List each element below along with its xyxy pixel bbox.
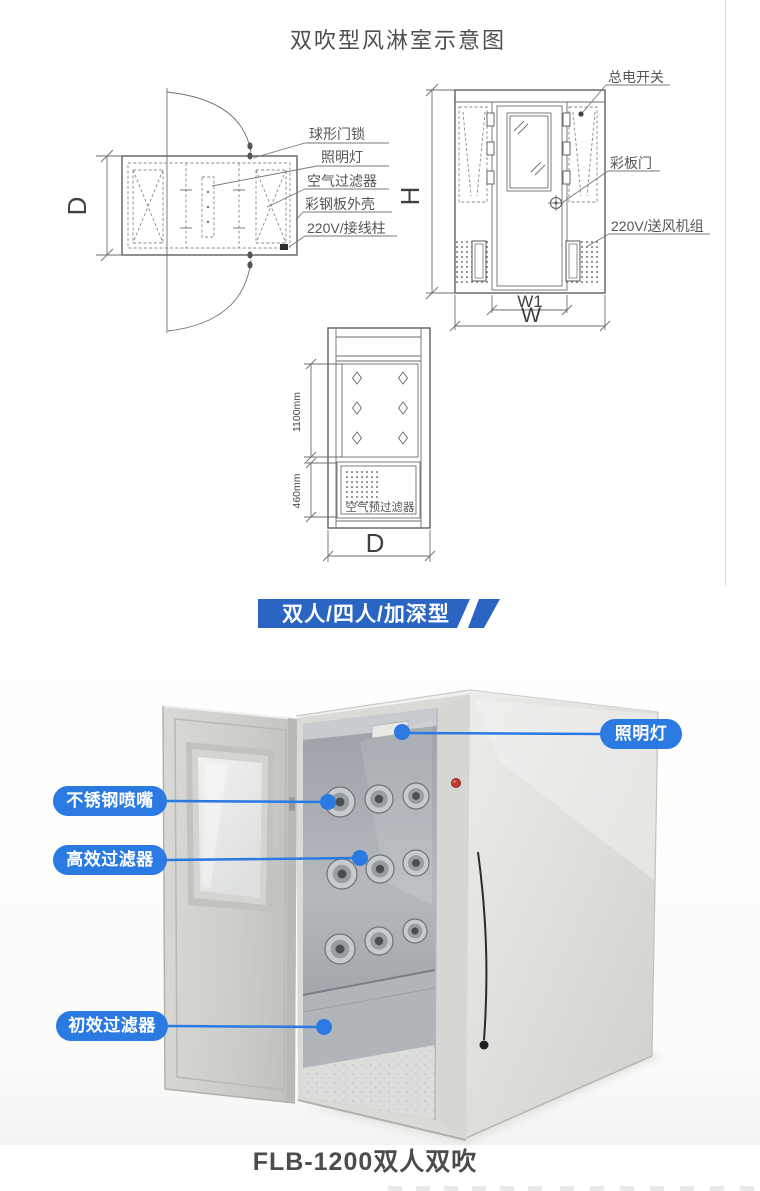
dim-label-height: H: [395, 187, 425, 206]
dim-label-depth: D: [366, 528, 385, 558]
technical-schematic: 双吹型风淋室示意图: [62, 0, 726, 586]
callout-label: 220V/接线柱: [307, 220, 386, 236]
open-door: [163, 706, 297, 1103]
dim-label-width: W: [521, 304, 541, 327]
callout-label: 220V/送风机组: [611, 218, 704, 234]
front-view: H W1 W 总电开关 彩板门 220V/送风机组: [395, 69, 710, 331]
callout-label: 总电开关: [608, 69, 664, 85]
callout-pill-prefilter: 初效过滤器: [56, 1011, 168, 1041]
plan-callouts: 球形门锁 照明灯 空气过滤器 彩钢板外壳 220V/接线柱: [212, 126, 397, 247]
nozzle-diamonds: [353, 372, 408, 444]
blower-left: [456, 238, 490, 284]
prefilter-panel-label: 空气预过滤器: [346, 500, 415, 514]
dim-label-upper: 1100mm: [291, 392, 303, 432]
blower-right: [566, 238, 600, 284]
side-view: 空气预过滤器 1100mm 460mm D: [291, 328, 435, 562]
callout-pill-hepa: 高效过滤器: [53, 845, 167, 875]
side-dim-upper: 1100mm: [291, 359, 342, 462]
door-latch: [289, 797, 295, 811]
callout-label: 空气过滤器: [307, 173, 377, 189]
indicator-light: [452, 779, 461, 788]
type-banner: 双人/四人/加深型: [258, 599, 500, 628]
front-dim-height: H: [395, 84, 455, 299]
product-model-caption: FLB-1200双人双吹: [0, 1142, 730, 1178]
banner-text: 双人/四人/加深型: [282, 603, 450, 626]
plan-view: D 球形门锁 照明灯 空气过滤器 彩钢板外壳 220V/接线柱: [62, 88, 397, 333]
front-callouts: 总电开关 彩板门 220V/送风机组: [563, 69, 710, 247]
door-hinges: [487, 113, 570, 184]
callout-pill-light: 照明灯: [600, 719, 682, 749]
side-dim-depth: D: [323, 528, 435, 562]
next-section-edge: [388, 1186, 754, 1191]
dim-label-depth: D: [62, 197, 92, 216]
main-power-switch-dot: [578, 111, 583, 116]
door-hinge-bottom: [247, 251, 252, 268]
terminal-post: [280, 244, 288, 250]
cabinet-front-column: [435, 694, 470, 1140]
banner-slash-decoration: [468, 599, 500, 628]
callout-label: 彩钢板外壳: [305, 196, 375, 212]
cabinet-interior: [303, 708, 437, 1120]
product-detail-section: 双吹型风淋室示意图: [0, 0, 760, 1191]
side-dim-lower: 460mm: [291, 458, 337, 522]
power-plug: [480, 1041, 489, 1050]
door-hinge-top: [247, 142, 252, 159]
callout-pill-nozzle: 不锈钢喷嘴: [53, 786, 167, 816]
callout-label: 照明灯: [321, 149, 363, 165]
callout-label: 彩板门: [610, 155, 652, 171]
schematic-title: 双吹型风淋室示意图: [290, 28, 506, 53]
dim-label-lower: 460mm: [291, 473, 303, 508]
callout-label: 球形门锁: [309, 126, 365, 142]
plan-dim-depth: D: [62, 150, 122, 261]
